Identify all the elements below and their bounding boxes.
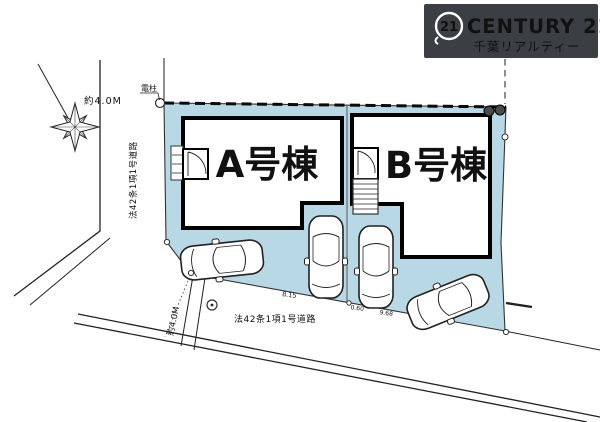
dimension-label: 9.68 xyxy=(379,309,393,318)
boundary-point-icon xyxy=(503,329,508,334)
utility-pole-icon xyxy=(156,99,165,108)
west-road-width-label: 約4.0M xyxy=(84,95,122,107)
survey-pin-icon xyxy=(495,105,505,115)
dimension-label: 8.15 xyxy=(282,290,297,300)
boundary-point-icon xyxy=(188,270,193,275)
building-a-label: A号棟 xyxy=(216,143,320,186)
building-b-label: B号棟 xyxy=(385,144,488,187)
logo-company-text: 千葉リアルティー xyxy=(473,39,580,54)
compass-rose xyxy=(38,64,99,151)
boundary-point-icon xyxy=(502,134,508,140)
road-utility-pole-dot xyxy=(211,304,214,307)
logo-seal-number: 21 xyxy=(440,20,458,35)
building-a-porch xyxy=(171,146,183,180)
road-edge xyxy=(78,314,600,417)
south-road xyxy=(74,314,600,422)
utility-pole-leader xyxy=(140,93,160,100)
site-plan-page: A号棟 B号棟 xyxy=(0,0,600,422)
car-lot-b-front xyxy=(355,226,398,308)
logo-brand-text: CENTURY 21 xyxy=(467,15,600,38)
boundary-point-icon xyxy=(164,239,169,244)
car-lot-a-front xyxy=(305,216,348,298)
neighbor-tick xyxy=(506,303,532,307)
dimension-label: 0.60 xyxy=(350,304,364,313)
road-edge xyxy=(74,323,587,422)
south-road-width-label: 約4.0M xyxy=(165,306,182,337)
west-road-name-label: 法42条1項1号道路 xyxy=(128,141,139,219)
road-corner-edge xyxy=(30,238,110,305)
survey-pin-icon xyxy=(484,106,494,116)
building-b-entrance xyxy=(353,148,378,179)
north-arrow-line xyxy=(38,64,68,118)
utility-pole-label: 電柱 xyxy=(141,83,157,93)
south-road-name-label: 法42条1項1号道路 xyxy=(234,313,316,325)
compass-axis-lines xyxy=(51,103,99,151)
century21-logo: 21 CENTURY 21 千葉リアルティー xyxy=(424,4,600,58)
site-plan-canvas: A号棟 B号棟 xyxy=(0,0,600,422)
road-near-edge-extension xyxy=(505,331,600,350)
